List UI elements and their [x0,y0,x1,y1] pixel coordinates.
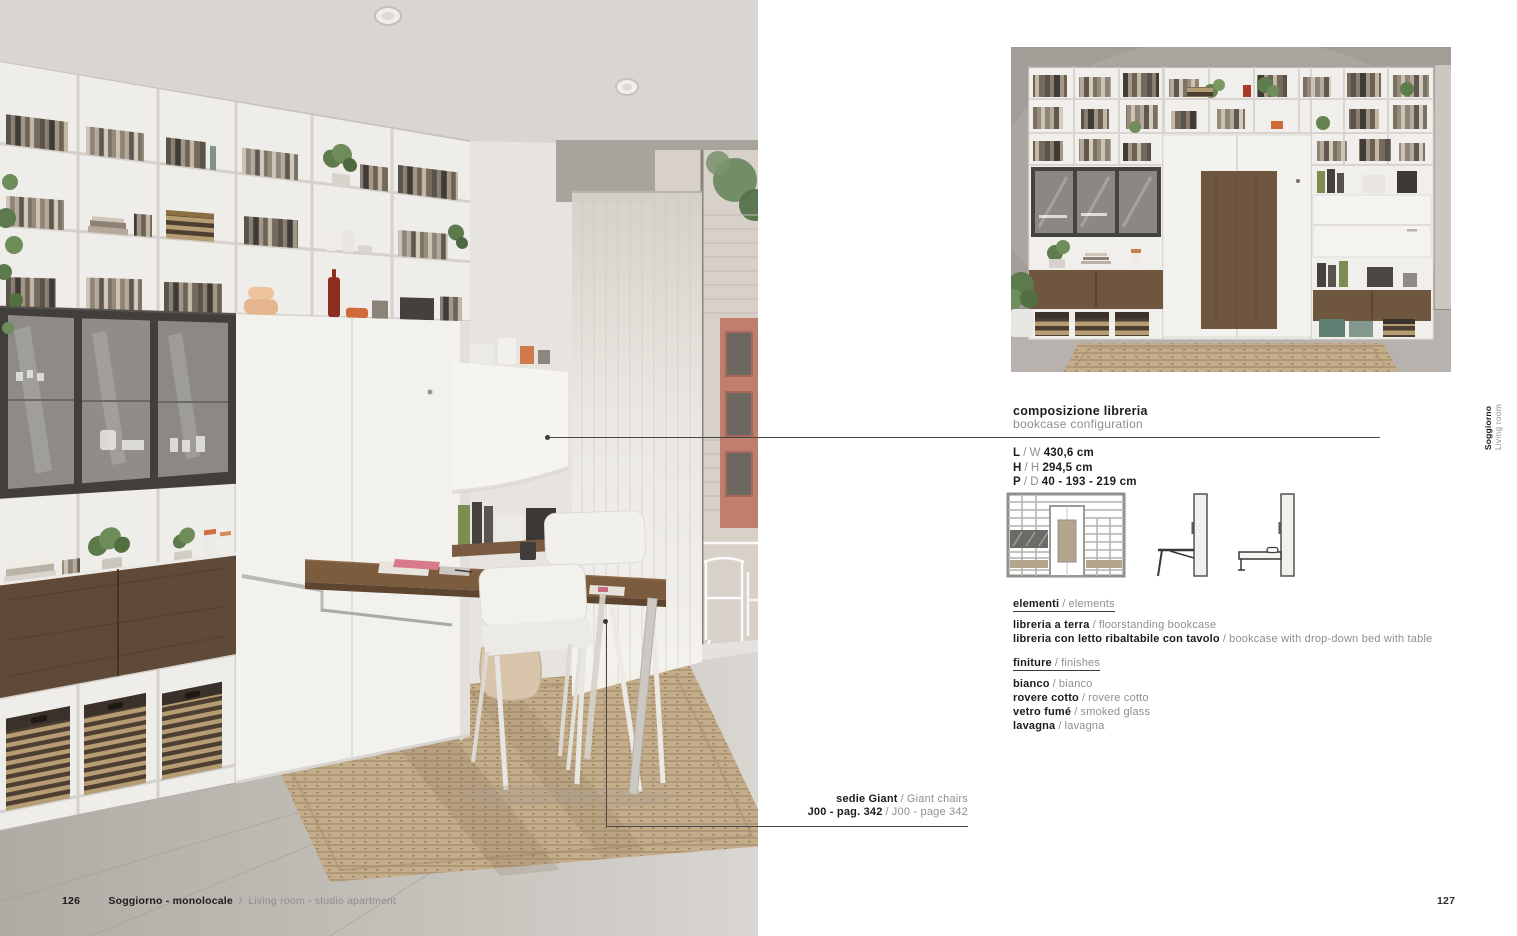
elements-heading-it: elementi [1013,598,1059,610]
leader-line-composition [547,437,1380,438]
footer-left: 126 Soggiorno - monolocale / Living room… [62,895,396,907]
living-room-photo [0,0,758,936]
element-item: libreria a terra/floorstanding bookcase [1013,618,1433,632]
finishes-heading-en: finishes [1061,657,1100,669]
side-tab-it: Soggiorno [1483,404,1493,450]
finish-item: rovere cotto/rovere cotto [1013,691,1433,705]
wall-bed-cabinet [236,314,470,782]
bookcase-product-photo [1011,47,1451,372]
footer-section-it: Soggiorno - monolocale [108,895,233,907]
product-bookcase [1029,67,1433,339]
element-item: libreria con letto ribaltabile con tavol… [1013,632,1433,646]
drawing-side-table [1158,494,1207,576]
page-number-left: 126 [62,895,80,907]
finish-item: lavagna/lavagna [1013,719,1433,733]
page-number-right: 127 [1437,895,1455,907]
leader-line-chairs-vertical [606,622,607,826]
dimension-height: H/H294,5 cm [1013,461,1140,476]
side-tab-en: Living room [1493,404,1503,450]
elements-heading-sep: / [1062,598,1065,610]
dim-sep: / [1023,447,1026,459]
facade-windows [720,318,758,528]
section-side-tab: Soggiorno Living room [1483,404,1503,450]
drawing-side-bed [1238,494,1294,576]
dim-value: 294,5 cm [1042,462,1092,474]
spec-title-en: bookcase configuration [1013,418,1393,431]
technical-drawings [1006,486,1306,582]
dim-value: 430,6 cm [1044,447,1094,459]
glass-cabinet [0,307,236,499]
chairs-callout-name: sedie Giant/Giant chairs [700,793,968,806]
finishes-heading-it: finiture [1013,657,1052,669]
spec-title: composizione libreria bookcase configura… [1013,405,1393,431]
dimension-width: L/W430,6 cm [1013,446,1140,461]
finishes-heading-sep: / [1055,657,1058,669]
curtain [572,192,702,696]
dim-en: W [1030,447,1041,459]
finishes-heading: finiture/finishes [1013,657,1100,671]
finishes-section: finiture/finishes bianco/bianco rovere c… [1013,653,1433,733]
chairs-callout: sedie Giant/Giant chairs J00 - pag. 342/… [700,793,968,819]
drawing-front-elevation [1008,494,1124,576]
footer-section-en: Living room - studio apartment [248,895,396,907]
chairs-callout-ref: J00 - pag. 342/J00 - page 342 [700,806,968,819]
dim-it: L [1013,447,1020,459]
dim-en: H [1031,462,1040,474]
product-rug [1063,343,1399,372]
finish-item: vetro fumé/smoked glass [1013,705,1433,719]
product-baskets [1035,312,1149,336]
catalog-spread: 126 Soggiorno - monolocale / Living room… [0,0,1517,936]
elements-heading-en: elements [1069,598,1115,610]
product-curtain [1435,65,1451,309]
dim-it: H [1013,462,1022,474]
elements-heading: elementi/elements [1013,598,1115,612]
spec-dimensions: L/W430,6 cm H/H294,5 cm P/D40 - 193 - 21… [1013,446,1140,490]
elements-section: elementi/elements libreria a terra/floor… [1013,594,1433,646]
leader-line-chairs-horizontal [606,826,968,827]
dim-sep: / [1025,462,1028,474]
footer-separator: / [239,895,242,907]
finish-item: bianco/bianco [1013,677,1433,691]
product-bed-unit [1163,135,1311,337]
